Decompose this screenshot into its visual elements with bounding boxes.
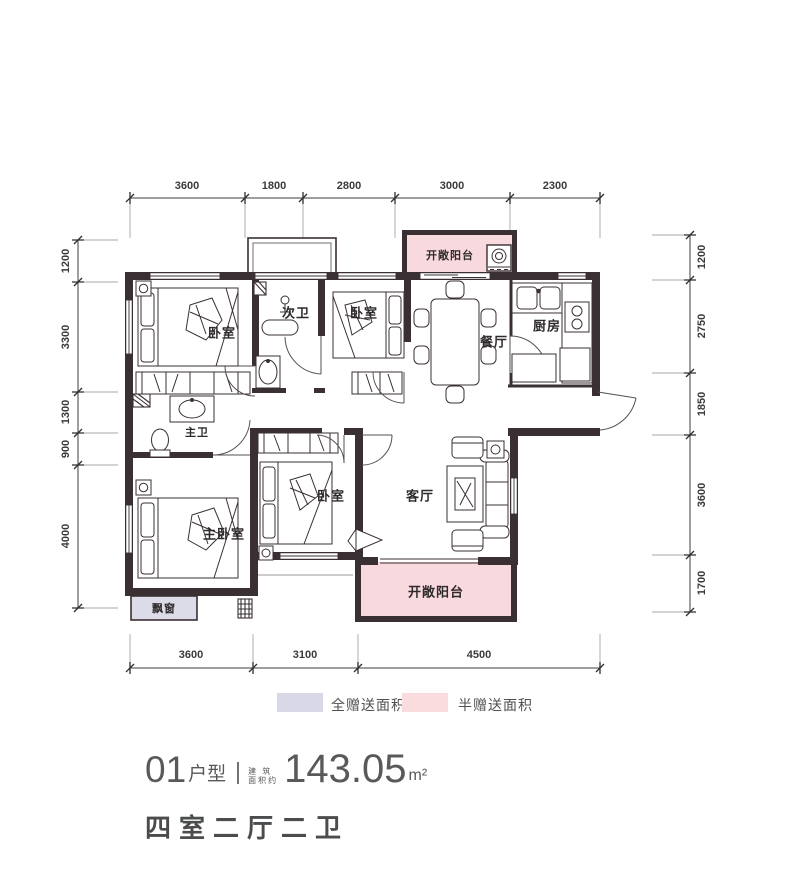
room-label-balcony-top: 开敞阳台 [426,247,474,263]
dim-right-3: 1850 [696,392,708,416]
dim-bottom-1: 3600 [179,649,203,661]
dim-right-5: 1700 [696,571,708,595]
room-label-kitchen: 厨房 [533,316,561,335]
dim-bottom-2: 3100 [293,649,317,661]
sink-icon [256,356,280,388]
toilet-icon [150,429,170,457]
legend-label-half-gift: 半赠送面积 [458,695,533,715]
room-label-master-bedroom: 主卧室 [203,524,245,543]
window-bay-outline [248,238,336,274]
sink-icon [170,396,214,422]
dim-top-5: 2300 [543,180,567,192]
dim-right-2: 2750 [696,314,708,338]
washing-machine-icon [487,245,511,271]
area-prefix: 建 筑 面积约 [248,767,278,785]
area-prefix-line1: 建 筑 [248,767,278,776]
dim-left-2: 3300 [60,325,72,349]
room-label-bay-window: 飘窗 [152,600,176,616]
room-label-living: 客厅 [406,486,434,505]
legend-swatch-full-gift [277,693,323,712]
bed-icon [259,462,332,560]
tv-icon [348,529,382,551]
area-unit: m² [409,764,428,788]
dim-left-5: 4000 [60,524,72,548]
title-divider [237,762,239,784]
dim-top-1: 3600 [175,180,199,192]
room-label-dining: 餐厅 [480,332,508,351]
floorplan-page: 卧室 次卫 卧室 餐厅 厨房 主卫 主卧室 卧室 客厅 开敞阳台 开敞阳台 飘窗… [0,0,800,881]
unit-number: 01 [145,752,186,788]
dim-right-4: 3600 [696,483,708,507]
dim-top-3: 2800 [337,180,361,192]
dim-left-4: 900 [60,440,72,458]
unit-title: 01 户型 建 筑 面积约 143.05 m² [145,750,427,788]
room-label-balcony-bottom: 开敞阳台 [408,582,464,601]
legend-swatch-half-gift [402,693,448,712]
unit-type-label: 户型 [188,762,226,788]
dim-top-2: 1800 [262,180,286,192]
area-prefix-line2: 面积约 [248,776,278,785]
area-value: 143.05 [284,750,406,788]
bathtub-icon [262,320,298,335]
legend-label-full-gift: 全赠送面积 [331,695,406,715]
dim-top-4: 3000 [440,180,464,192]
layout-description: 四室二厅二卫 [145,808,349,845]
dim-left-3: 1300 [60,400,72,424]
room-label-master-bath: 主卫 [185,424,209,440]
room-label-bedroom1: 卧室 [208,323,236,342]
sofa-icon [447,437,509,551]
dim-left-1: 1200 [60,249,72,273]
dim-bottom-3: 4500 [467,649,491,661]
room-label-bedroom3: 卧室 [317,486,345,505]
room-label-bedroom2: 卧室 [350,303,378,322]
room-label-second-bath: 次卫 [282,303,310,322]
dim-right-1: 1200 [696,245,708,269]
